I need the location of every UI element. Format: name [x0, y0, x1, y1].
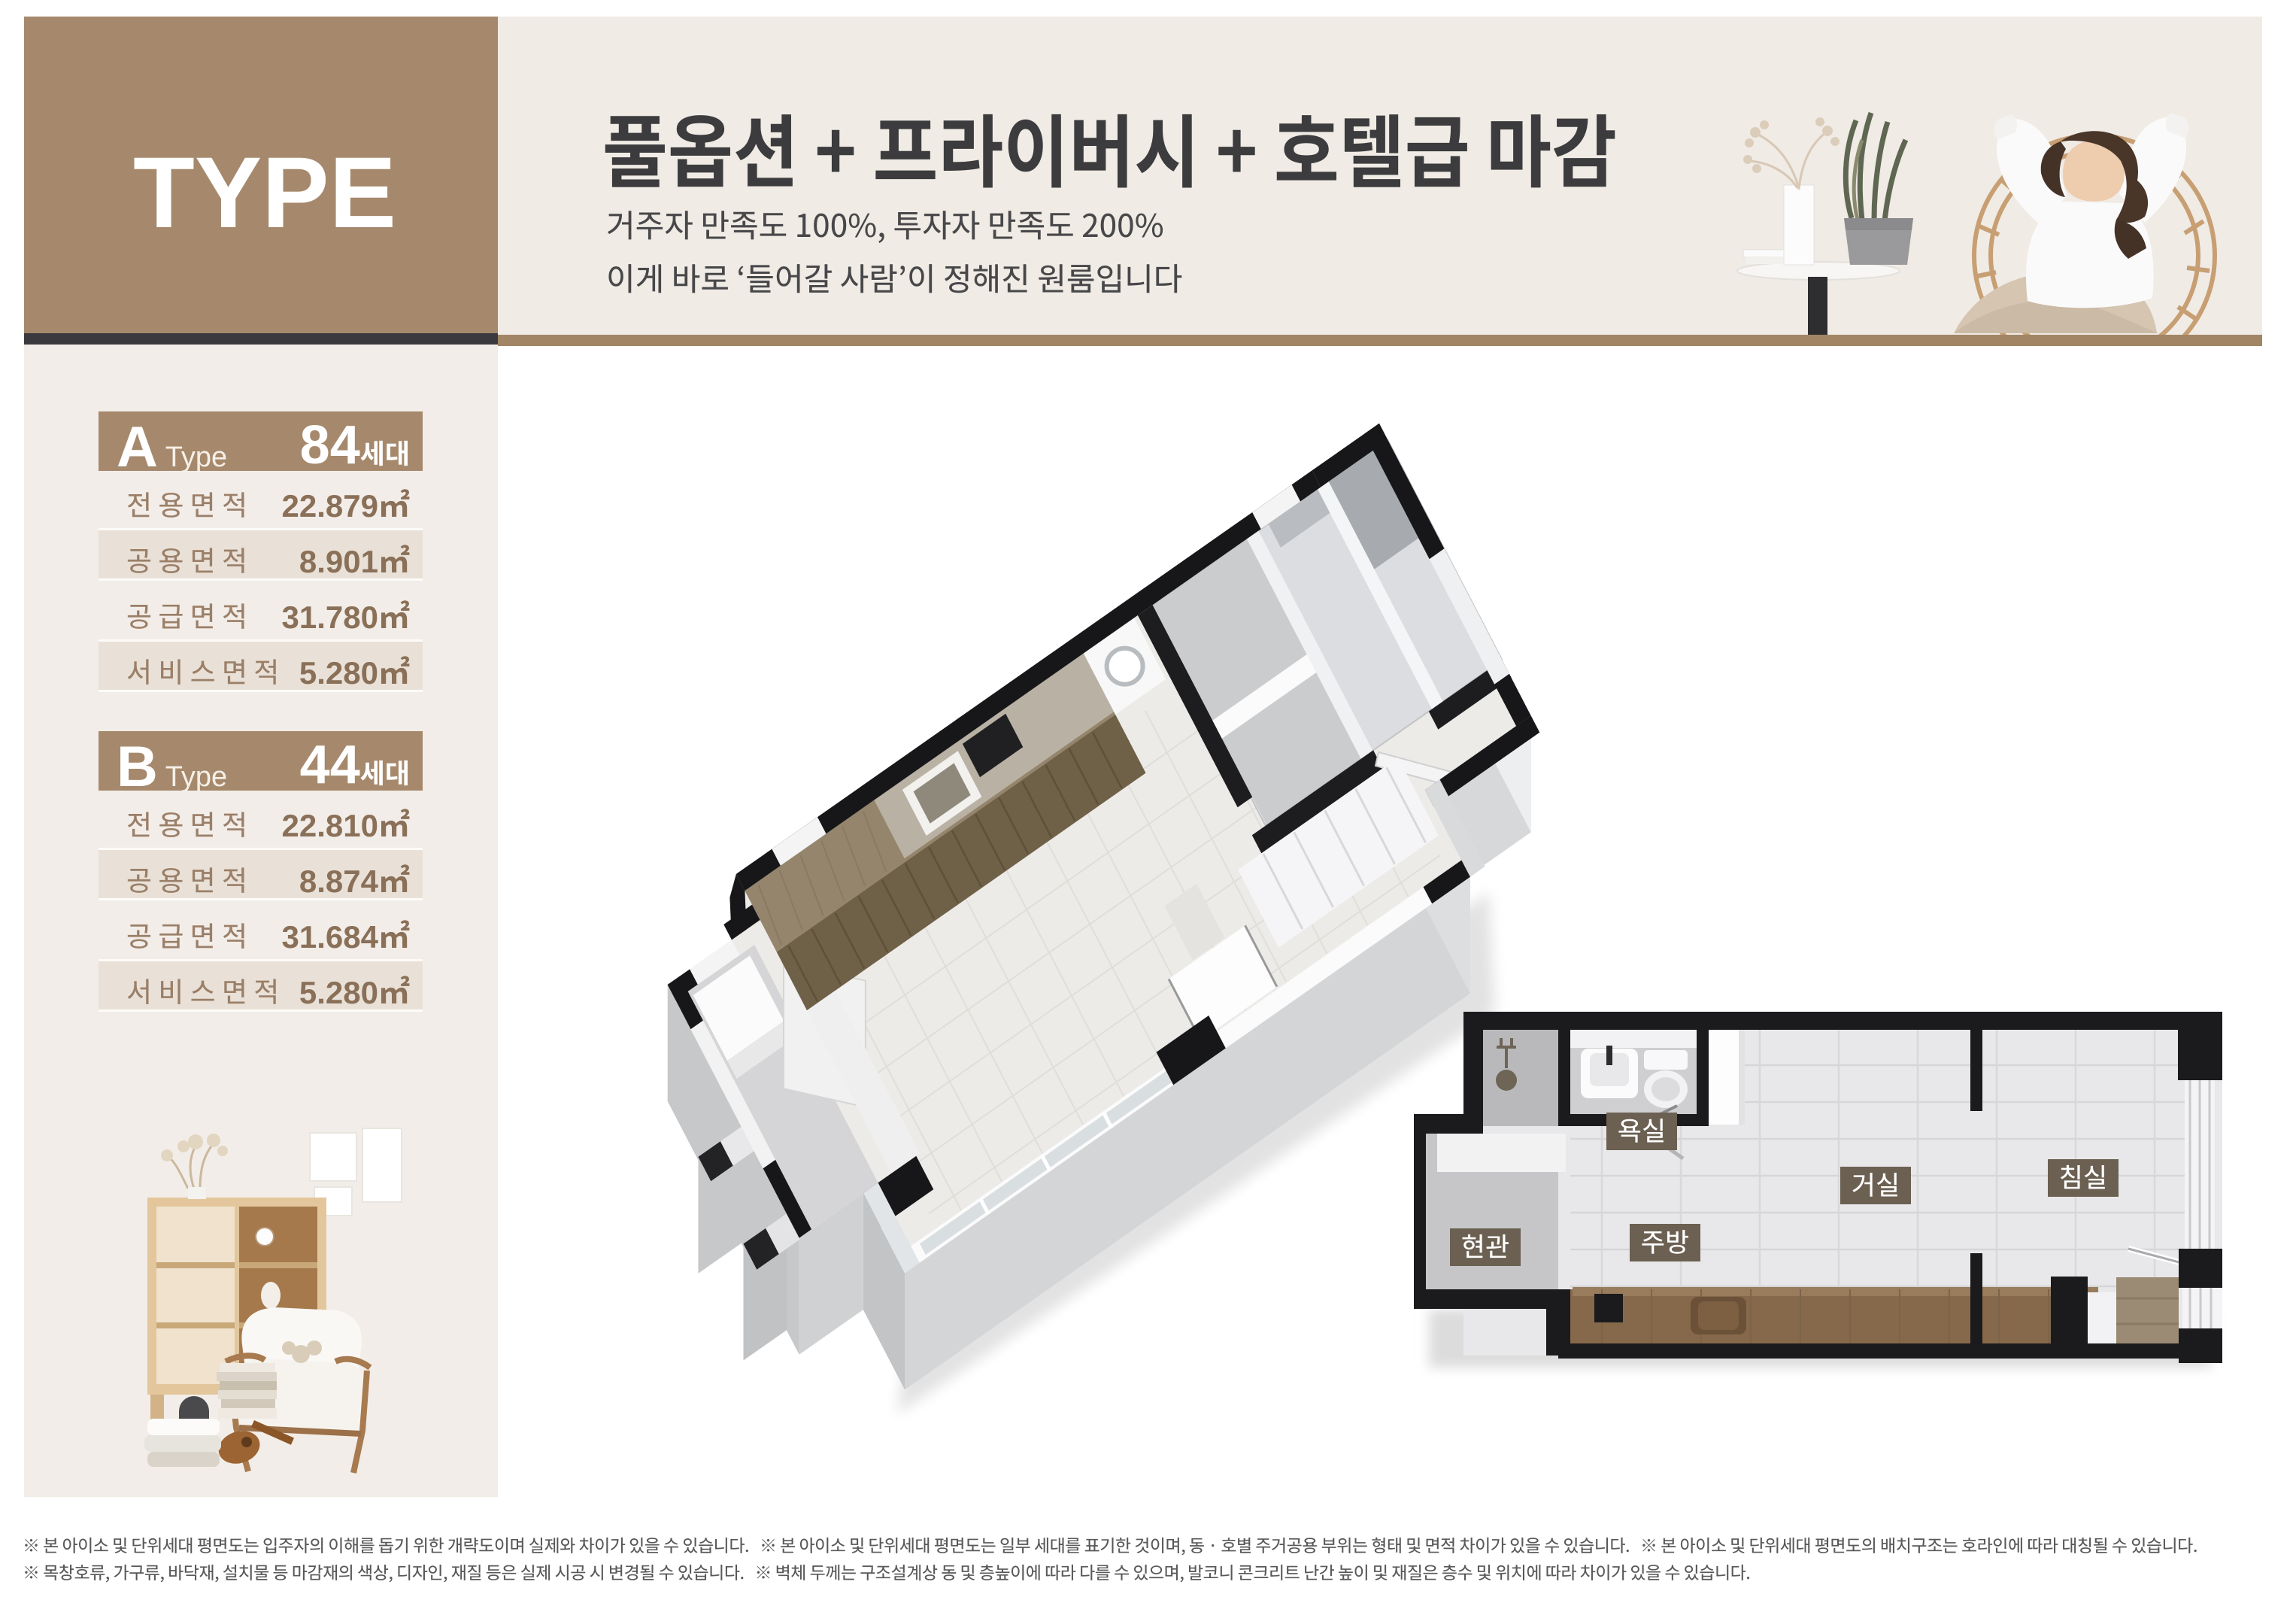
svg-text:욕실: 욕실: [1618, 1110, 1666, 1149]
svg-text:주방: 주방: [1641, 1222, 1689, 1260]
svg-text:거실: 거실: [1852, 1164, 1900, 1203]
svg-text:침실: 침실: [2059, 1157, 2107, 1195]
svg-text:현관: 현관: [1461, 1226, 1509, 1264]
